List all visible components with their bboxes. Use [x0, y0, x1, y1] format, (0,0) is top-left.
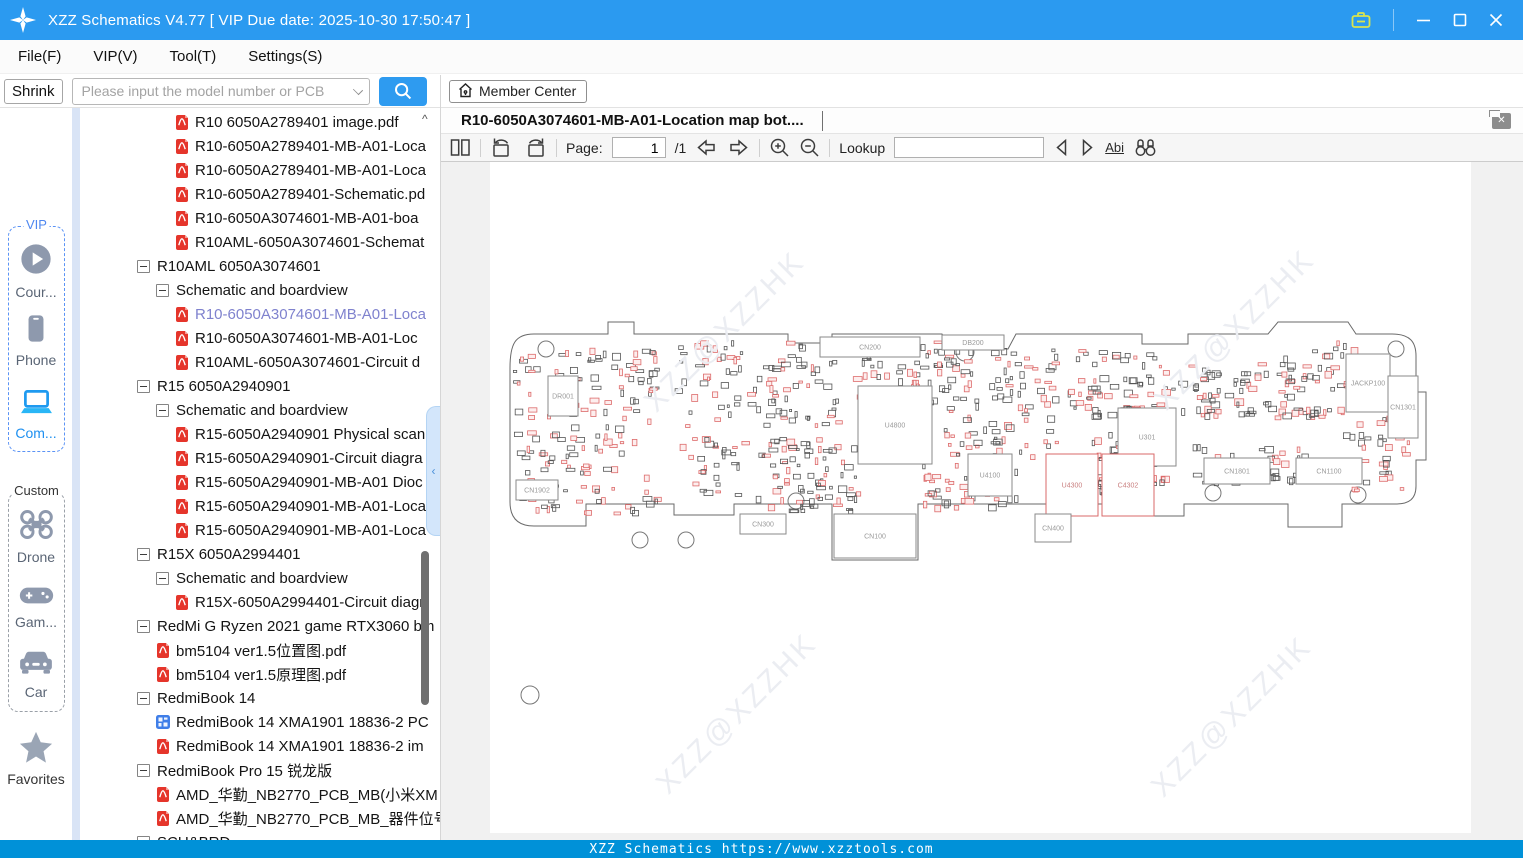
favorites-label: Favorites: [7, 771, 65, 787]
page-total: /1: [675, 140, 687, 156]
binoculars-search-icon[interactable]: [1133, 138, 1158, 158]
next-page-button[interactable]: [727, 138, 750, 157]
search-area: Shrink: [0, 75, 440, 107]
status-text: XZZ Schematics https://www.xzztools.com: [589, 842, 933, 857]
tree-file-row[interactable]: R15-6050A2940901 Physical scan: [80, 422, 440, 446]
tree-file-row[interactable]: R10-6050A3074601-MB-A01-Loca: [80, 302, 440, 326]
pdf-file-icon: [175, 235, 189, 250]
status-bar: XZZ Schematics https://www.xzztools.com: [0, 840, 1523, 858]
tree-item-label: RedmiBook 14: [157, 690, 255, 707]
viewer-toolbar: Page: /1 Lookup Abi: [441, 134, 1523, 162]
tree-item-label: R10AML-6050A3074601-Schemat: [195, 234, 424, 251]
tree-item-label: Schematic and boardview: [176, 402, 348, 419]
tree-file-row[interactable]: R15-6050A2940901-Circuit diagra: [80, 446, 440, 470]
svg-text:CN1801: CN1801: [1224, 469, 1250, 476]
tree-item-label: R15-6050A2940901-MB-A01-Loca: [195, 522, 426, 539]
tree-group-row[interactable]: R10AML 6050A3074601: [80, 254, 440, 278]
tree-file-row[interactable]: bm5104 ver1.5原理图.pdf: [80, 662, 440, 686]
tree-item-label: AMD_华勤_NB2770_PCB_MB_器件位号: [176, 808, 440, 829]
gamepad-icon: [18, 585, 55, 610]
pdf-file-icon: [175, 595, 189, 610]
menu-item-vip[interactable]: VIP(V): [93, 48, 137, 65]
title-bar: XZZ Schematics V4.77 [ VIP Due date: 202…: [0, 0, 1523, 40]
left-nav-strip: VIP Custom Cour...PhoneCom...DroneGam...…: [0, 108, 72, 840]
pdf-file-icon: [156, 643, 170, 658]
pdf-file-icon: [175, 523, 189, 538]
collapse-toggle-icon[interactable]: [137, 548, 150, 561]
tree-item-label: R10AML-6050A3074601-Circuit d: [195, 354, 420, 371]
sidebar-item-label: Gam...: [15, 614, 57, 630]
pdf-file-icon: [156, 667, 170, 682]
svg-text:CN1301: CN1301: [1390, 405, 1416, 412]
sidebar-item-phone[interactable]: Phone: [0, 313, 72, 368]
collapse-toggle-icon[interactable]: [156, 404, 169, 417]
tree-file-row[interactable]: AMD_华勤_NB2770_PCB_MB(小米XM: [80, 782, 440, 806]
collapse-toggle-icon[interactable]: [137, 620, 150, 633]
home-icon: [458, 83, 473, 98]
pdf-file-icon: [156, 739, 170, 754]
svg-text:C4302: C4302: [1118, 483, 1139, 490]
tree-item-label: RedmiBook 14 XMA1901 18836-2 PC: [176, 714, 429, 731]
collapse-panel-handle[interactable]: ‹: [426, 406, 440, 536]
member-center-row: Member Center: [441, 75, 587, 107]
svg-text:U4100: U4100: [980, 473, 1001, 480]
tree-group-row[interactable]: Schematic and boardview: [80, 398, 440, 422]
search-button[interactable]: [379, 77, 427, 106]
close-document-icon[interactable]: ✕: [1492, 113, 1511, 129]
pdf-file-icon: [156, 787, 170, 802]
sidebar-item-games[interactable]: Gam...: [0, 585, 72, 630]
svg-text:DR001: DR001: [552, 394, 574, 401]
lookup-input[interactable]: [894, 137, 1044, 158]
tree-item-label: Schematic and boardview: [176, 282, 348, 299]
svg-text:CN1902: CN1902: [524, 488, 550, 495]
pdf-file-icon: [175, 475, 189, 490]
sidebar-item-favorites[interactable]: Favorites: [0, 730, 72, 787]
search-icon: [393, 81, 413, 101]
document-viewer[interactable]: DR001CN1902CN200DB200U4800U301U4300C4302…: [441, 162, 1523, 840]
sidebar-item-label: Cour...: [15, 284, 56, 300]
zoom-out-button[interactable]: [799, 137, 820, 158]
tree-file-row[interactable]: R10-6050A2789401-MB-A01-Loca: [80, 134, 440, 158]
find-next-button[interactable]: [1079, 138, 1096, 157]
tree-group-row[interactable]: Schematic and boardview: [80, 566, 440, 590]
sidebar-item-courses[interactable]: Cour...: [0, 242, 72, 300]
sidebar-item-label: Car: [25, 684, 48, 700]
tree-item-label: R10-6050A2789401-MB-A01-Loca: [195, 138, 426, 155]
svg-text:CN200: CN200: [859, 345, 881, 352]
minimize-button[interactable]: [1416, 13, 1431, 27]
tree-group-row[interactable]: R15X 6050A2994401: [80, 542, 440, 566]
svg-text:U4800: U4800: [885, 423, 906, 430]
tree-file-row[interactable]: R10-6050A2789401-Schematic.pd: [80, 182, 440, 206]
tree-item-label: RedMi G Ryzen 2021 game RTX3060 bm: [157, 618, 434, 635]
tree-group-row[interactable]: SCU&BRD: [80, 830, 440, 840]
tree-item-label: R10-6050A3074601-MB-A01-boa: [195, 210, 418, 227]
model-search-input[interactable]: [72, 78, 370, 105]
tree-item-label: RedmiBook Pro 15 锐龙版: [157, 760, 332, 781]
sidebar-item-computer[interactable]: Com...: [0, 388, 72, 441]
tree-file-row[interactable]: R10AML-6050A3074601-Schemat: [80, 230, 440, 254]
license-briefcase-icon[interactable]: [1351, 11, 1371, 29]
collapse-toggle-icon[interactable]: [137, 764, 150, 777]
tree-item-label: R10AML 6050A3074601: [157, 258, 321, 275]
tree-group-row[interactable]: Schematic and boardview: [80, 278, 440, 302]
pdf-file-icon: [175, 211, 189, 226]
lookup-label: Lookup: [839, 140, 885, 156]
match-case-toggle[interactable]: Abi: [1105, 140, 1124, 155]
document-tab[interactable]: R10-6050A3074601-MB-A01-Location map bot…: [441, 112, 822, 129]
svg-text:CN100: CN100: [864, 534, 886, 541]
page-label: Page:: [566, 140, 603, 156]
collapse-toggle-icon[interactable]: [137, 260, 150, 273]
tree-file-row[interactable]: AMD_华勤_NB2770_PCB_MB_器件位号: [80, 806, 440, 830]
drone-icon: [18, 508, 55, 545]
tree-item-label: bm5104 ver1.5位置图.pdf: [176, 640, 346, 661]
tree-item-label: R15X 6050A2994401: [157, 546, 300, 563]
svg-text:U301: U301: [1139, 435, 1156, 442]
tree-file-row[interactable]: R15-6050A2940901-MB-A01 Dioc: [80, 470, 440, 494]
svg-text:CN300: CN300: [752, 522, 774, 529]
tree-item-label: R15-6050A2940901-Circuit diagra: [195, 450, 423, 467]
pdf-file-icon: [175, 331, 189, 346]
scroll-up-arrow[interactable]: ^: [422, 112, 428, 126]
pdf-file-icon: [175, 307, 189, 322]
pdf-file-icon: [175, 187, 189, 202]
shrink-button[interactable]: Shrink: [4, 79, 63, 104]
two-page-view-button[interactable]: [450, 138, 471, 157]
tree-item-label: R15-6050A2940901 Physical scan: [195, 426, 425, 443]
pdf-file-icon: [175, 163, 189, 178]
document-tab-bar: R10-6050A3074601-MB-A01-Location map bot…: [441, 108, 1523, 134]
tree-item-label: R10-6050A3074601-MB-A01-Loca: [195, 306, 426, 323]
find-previous-button[interactable]: [1053, 138, 1070, 157]
tree-file-row[interactable]: R10-6050A3074601-MB-A01-boa: [80, 206, 440, 230]
sidebar-item-drone[interactable]: Drone: [0, 508, 72, 565]
tree-item-label: R15X-6050A2994401-Circuit diagr: [195, 594, 424, 611]
member-center-label: Member Center: [479, 83, 576, 99]
play-circle-icon: [19, 242, 53, 280]
tree-group-row[interactable]: R15 6050A2940901: [80, 374, 440, 398]
tree-item-label: R15 6050A2940901: [157, 378, 290, 395]
pdf-file-icon: [175, 139, 189, 154]
svg-text:U4300: U4300: [1062, 483, 1083, 490]
tree-group-row[interactable]: RedmiBook Pro 15 锐龙版: [80, 758, 440, 782]
top-row: Shrink Member Center: [0, 75, 1523, 107]
tree-item-label: AMD_华勤_NB2770_PCB_MB(小米XM: [176, 784, 438, 805]
custom-group-label: Custom: [11, 483, 62, 498]
file-tree: R10 6050A2789401 image.pdfR10-6050A27894…: [80, 110, 440, 840]
pdf-page[interactable]: DR001CN1902CN200DB200U4800U301U4300C4302…: [490, 162, 1471, 833]
vip-group-label: VIP: [23, 217, 50, 232]
tree-item-label: R10-6050A3074601-MB-A01-Loc: [195, 330, 418, 347]
page-number-input[interactable]: [612, 137, 666, 158]
sidebar-item-car[interactable]: Car: [0, 648, 72, 700]
nav-tree-divider: [72, 108, 80, 840]
svg-text:JACKP100: JACKP100: [1351, 381, 1385, 388]
collapse-toggle-icon[interactable]: [156, 572, 169, 585]
tab-separator: [822, 111, 823, 131]
tree-file-row[interactable]: RedmiBook 14 XMA1901 18836-2 im: [80, 734, 440, 758]
tree-file-row[interactable]: R10 6050A2789401 image.pdf: [80, 110, 440, 134]
tree-file-row[interactable]: bm5104 ver1.5位置图.pdf: [80, 638, 440, 662]
menu-item-tool[interactable]: Tool(T): [170, 48, 217, 65]
pdf-file-icon: [156, 811, 170, 826]
tree-file-row[interactable]: R10AML-6050A3074601-Circuit d: [80, 350, 440, 374]
tree-file-row[interactable]: R10-6050A3074601-MB-A01-Loc: [80, 326, 440, 350]
pdf-file-icon: [175, 427, 189, 442]
tree-item-label: RedmiBook 14 XMA1901 18836-2 im: [176, 738, 424, 755]
sidebar-item-label: Phone: [16, 352, 56, 368]
tree-file-row[interactable]: R15X-6050A2994401-Circuit diagr: [80, 590, 440, 614]
close-button[interactable]: [1489, 13, 1503, 27]
svg-text:CN1100: CN1100: [1316, 469, 1341, 476]
car-icon: [18, 648, 54, 680]
zoom-in-button[interactable]: [769, 137, 790, 158]
svg-text:DB200: DB200: [962, 340, 984, 347]
app-logo-icon: [10, 7, 36, 33]
tree-file-row[interactable]: R10-6050A2789401-MB-A01-Loca: [80, 158, 440, 182]
sidebar-item-label: Com...: [15, 425, 56, 441]
tree-item-label: bm5104 ver1.5原理图.pdf: [176, 664, 346, 685]
tree-item-label: R10-6050A2789401-MB-A01-Loca: [195, 162, 426, 179]
laptop-icon: [18, 388, 55, 421]
maximize-button[interactable]: [1453, 13, 1467, 27]
pdf-file-icon: [175, 115, 189, 130]
menu-item-settings[interactable]: Settings(S): [248, 48, 322, 65]
member-center-button[interactable]: Member Center: [449, 80, 587, 103]
tree-item-label: R10-6050A2789401-Schematic.pd: [195, 186, 425, 203]
tree-item-label: Schematic and boardview: [176, 570, 348, 587]
tree-file-row[interactable]: R15-6050A2940901-MB-A01-Loca: [80, 494, 440, 518]
collapse-toggle-icon[interactable]: [156, 284, 169, 297]
menu-item-file[interactable]: File(F): [18, 48, 61, 65]
tree-group-row[interactable]: RedMi G Ryzen 2021 game RTX3060 bm: [80, 614, 440, 638]
tree-file-row[interactable]: RedmiBook 14 XMA1901 18836-2 PC: [80, 710, 440, 734]
pdf-file-icon: [175, 451, 189, 466]
pdf-file-icon: [175, 499, 189, 514]
tree-scrollbar-thumb[interactable]: [421, 551, 429, 705]
menu-bar: File(F)VIP(V)Tool(T)Settings(S): [0, 40, 1523, 74]
collapse-toggle-icon[interactable]: [137, 692, 150, 705]
tree-item-label: R15-6050A2940901-MB-A01 Dioc: [195, 474, 423, 491]
tree-item-label: R10 6050A2789401 image.pdf: [195, 114, 399, 131]
boardview-file-icon: [156, 715, 170, 729]
titlebar-separator: [1393, 9, 1394, 31]
pcb-board-drawing: DR001CN1902CN200DB200U4800U301U4300C4302…: [490, 162, 1471, 833]
phone-icon: [22, 313, 50, 348]
collapse-toggle-icon[interactable]: [137, 380, 150, 393]
rotate-left-button[interactable]: [490, 137, 514, 158]
rotate-right-button[interactable]: [523, 137, 547, 158]
star-icon: [18, 730, 54, 768]
tree-file-row[interactable]: R15-6050A2940901-MB-A01-Loca: [80, 518, 440, 542]
window-title: XZZ Schematics V4.77 [ VIP Due date: 202…: [48, 12, 470, 29]
pdf-file-icon: [175, 355, 189, 370]
tree-group-row[interactable]: RedmiBook 14: [80, 686, 440, 710]
previous-page-button[interactable]: [695, 138, 718, 157]
sidebar-item-label: Drone: [17, 549, 55, 565]
tree-item-label: R15-6050A2940901-MB-A01-Loca: [195, 498, 426, 515]
svg-text:CN400: CN400: [1042, 526, 1064, 533]
